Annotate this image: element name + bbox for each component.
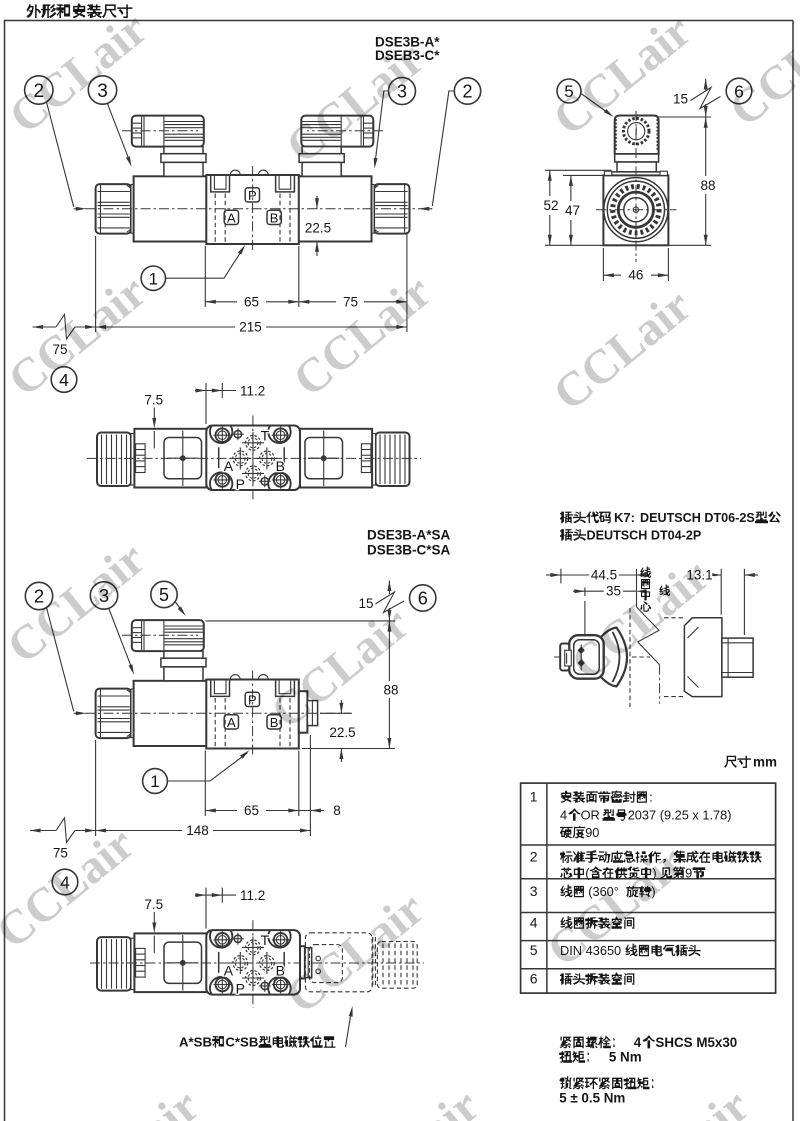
svg-text:DEUTSCH DT06-2S: DEUTSCH DT06-2S	[640, 511, 755, 525]
svg-text:A: A	[224, 458, 234, 474]
svg-text:148: 148	[186, 823, 209, 838]
svg-text:P: P	[236, 981, 245, 997]
svg-text:35: 35	[606, 584, 621, 599]
svg-text:A: A	[227, 211, 236, 226]
svg-text:47: 47	[565, 203, 580, 218]
svg-text:4: 4	[560, 808, 567, 823]
svg-text:88: 88	[383, 683, 398, 698]
svg-text:1: 1	[149, 269, 158, 288]
svg-text:(: (	[585, 866, 590, 881]
svg-text:T: T	[261, 932, 270, 948]
svg-text:215: 215	[239, 320, 262, 335]
svg-text:1: 1	[150, 772, 159, 791]
svg-text:44.5: 44.5	[591, 568, 617, 583]
svg-text::: :	[649, 791, 653, 805]
svg-text:CCLair: CCLair	[331, 1079, 489, 1121]
svg-text:8: 8	[333, 803, 341, 818]
svg-text:5 Nm: 5 Nm	[609, 1050, 642, 1065]
svg-text:2: 2	[462, 82, 472, 102]
svg-text:46: 46	[628, 268, 643, 283]
svg-text:65: 65	[244, 294, 259, 309]
svg-text:11.2: 11.2	[240, 888, 265, 903]
svg-text:52: 52	[543, 198, 558, 213]
svg-text:7.5: 7.5	[144, 897, 163, 912]
svg-text:11.2: 11.2	[240, 384, 265, 399]
svg-text:B: B	[270, 211, 279, 226]
svg-text:K7:: K7:	[614, 510, 635, 525]
svg-text:4: 4	[530, 915, 538, 931]
svg-text:65: 65	[244, 803, 259, 818]
svg-text:CCLair: CCLair	[51, 1079, 209, 1121]
svg-text:CCLair: CCLair	[0, 532, 155, 674]
svg-text:P: P	[236, 476, 245, 492]
svg-text:C*SB: C*SB	[225, 1035, 258, 1050]
svg-text:SHCS M5x30: SHCS M5x30	[655, 1035, 737, 1050]
svg-text:4: 4	[634, 1035, 642, 1050]
svg-text:7.5: 7.5	[144, 393, 163, 408]
svg-text:A: A	[224, 962, 234, 978]
svg-text:3: 3	[530, 883, 538, 899]
svg-text:1: 1	[530, 789, 538, 805]
svg-text:DEUTSCH DT04-2P: DEUTSCH DT04-2P	[587, 529, 702, 543]
svg-text:mm: mm	[753, 755, 777, 770]
svg-text:5: 5	[159, 585, 169, 605]
svg-text:B: B	[276, 458, 285, 474]
svg-text:CCLair: CCLair	[261, 597, 419, 739]
svg-text:22.5: 22.5	[305, 221, 331, 236]
svg-text:2037 (9.25 x 1.78): 2037 (9.25 x 1.78)	[628, 808, 732, 823]
svg-text:22.5: 22.5	[329, 725, 355, 740]
svg-text:CCLair: CCLair	[283, 265, 441, 407]
svg-text:5: 5	[530, 942, 538, 958]
svg-text:CCLair: CCLair	[543, 279, 701, 421]
svg-text:A: A	[227, 715, 236, 730]
svg-text:88: 88	[700, 178, 715, 193]
svg-text:CCLair: CCLair	[276, 32, 434, 174]
svg-text:5 ± 0.5 Nm: 5 ± 0.5 Nm	[559, 1091, 625, 1106]
svg-text:CCLair: CCLair	[0, 265, 156, 407]
svg-text:OR: OR	[581, 808, 600, 823]
svg-text:DSE3B-A*SA: DSE3B-A*SA	[367, 528, 451, 543]
svg-text:15: 15	[673, 92, 688, 107]
svg-text:T: T	[261, 428, 270, 444]
svg-text:90: 90	[585, 825, 599, 840]
svg-text:6: 6	[418, 589, 428, 609]
svg-text:6: 6	[530, 971, 538, 987]
svg-text:DSE3B-C*SA: DSE3B-C*SA	[367, 543, 451, 558]
svg-text:A*SB: A*SB	[179, 1035, 212, 1050]
svg-text:2: 2	[530, 849, 538, 865]
